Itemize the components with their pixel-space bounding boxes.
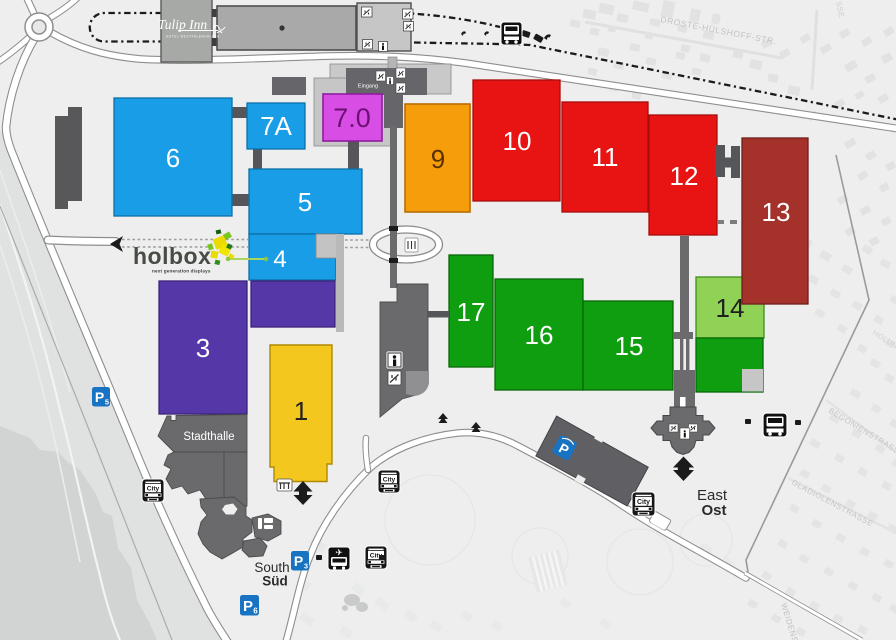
svg-text:Süd: Süd [262, 574, 288, 589]
svg-text:Ost: Ost [701, 502, 726, 519]
svg-text:P: P [95, 389, 104, 405]
svg-text:HOTEL WESTFALENHALLEN: HOTEL WESTFALENHALLEN [166, 35, 220, 39]
svg-text:11: 11 [592, 142, 619, 172]
svg-text:✈: ✈ [335, 548, 343, 558]
svg-text:14: 14 [716, 293, 745, 323]
svg-text:7.0: 7.0 [333, 103, 371, 133]
svg-text:6: 6 [253, 607, 258, 616]
svg-text:17: 17 [457, 297, 486, 327]
svg-text:16: 16 [525, 320, 554, 350]
svg-text:6: 6 [166, 143, 180, 173]
svg-text:Tulip Inn: Tulip Inn [158, 17, 207, 32]
svg-text:12: 12 [670, 161, 699, 191]
svg-text:15: 15 [615, 331, 644, 361]
svg-text:5: 5 [105, 398, 109, 407]
svg-text:Eingang: Eingang [358, 84, 378, 90]
svg-text:City: City [147, 486, 160, 493]
svg-text:5: 5 [298, 187, 312, 217]
svg-text:City: City [637, 499, 650, 506]
svg-text:P: P [243, 598, 253, 615]
svg-text:4: 4 [273, 246, 286, 273]
svg-text:holbox: holbox [133, 243, 211, 269]
svg-text:1: 1 [294, 396, 308, 426]
svg-text:P: P [294, 553, 303, 569]
svg-text:7A: 7A [260, 111, 292, 141]
svg-text:3: 3 [304, 562, 308, 571]
svg-text:10: 10 [503, 126, 532, 156]
svg-text:9: 9 [431, 144, 445, 174]
svg-text:next generation displays: next generation displays [152, 269, 211, 274]
svg-text:Stadthalle: Stadthalle [183, 431, 234, 443]
svg-text:3: 3 [196, 333, 210, 363]
svg-text:City: City [383, 477, 396, 484]
svg-text:13: 13 [762, 197, 791, 227]
